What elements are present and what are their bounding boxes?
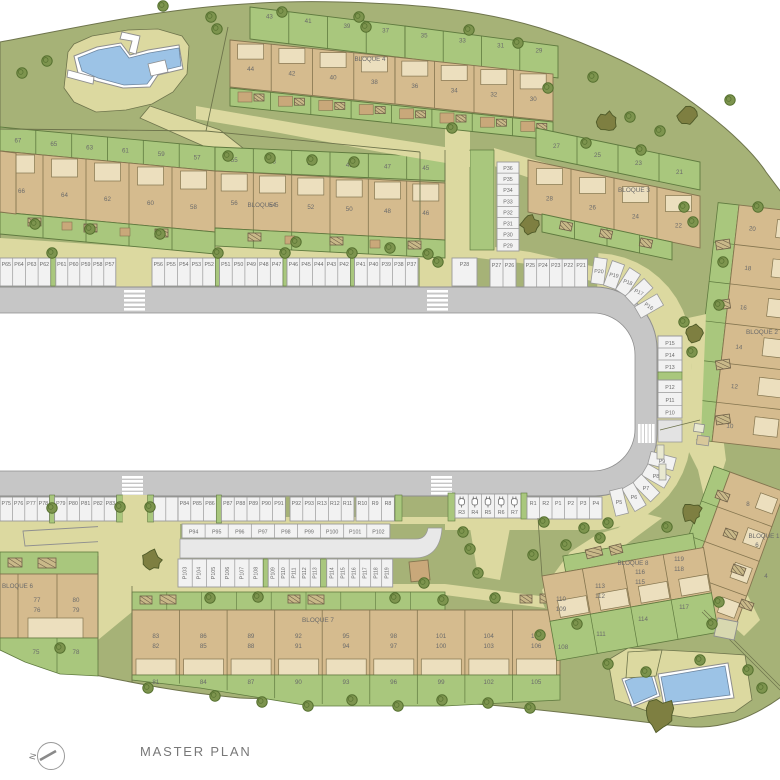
svg-text:113: 113: [595, 583, 605, 590]
svg-text:P118: P118: [374, 567, 380, 579]
svg-text:35: 35: [421, 33, 428, 40]
svg-text:81: 81: [152, 679, 159, 686]
svg-text:98: 98: [390, 633, 397, 640]
svg-text:64: 64: [61, 192, 68, 199]
svg-text:P55: P55: [166, 262, 175, 268]
svg-text:P42: P42: [339, 262, 348, 268]
svg-text:99: 99: [438, 679, 445, 686]
svg-text:P90: P90: [261, 501, 270, 507]
svg-text:P28: P28: [460, 262, 469, 268]
svg-text:P87: P87: [223, 501, 232, 507]
svg-text:59: 59: [158, 151, 165, 158]
svg-text:85: 85: [200, 643, 207, 650]
svg-text:92: 92: [295, 633, 302, 640]
svg-text:P33: P33: [503, 199, 512, 205]
svg-text:BLOQUE 1: BLOQUE 1: [749, 533, 780, 540]
svg-text:28: 28: [546, 196, 553, 203]
svg-text:31: 31: [497, 43, 504, 50]
svg-text:36: 36: [411, 83, 418, 90]
svg-text:112: 112: [595, 593, 605, 600]
svg-text:43: 43: [266, 13, 273, 20]
svg-text:16: 16: [740, 304, 748, 312]
svg-text:57: 57: [194, 154, 201, 161]
svg-text:P10: P10: [665, 411, 674, 417]
svg-text:37: 37: [382, 28, 389, 35]
svg-text:P82: P82: [93, 501, 102, 507]
svg-text:108: 108: [558, 644, 569, 651]
svg-text:114: 114: [638, 616, 648, 623]
svg-text:12: 12: [731, 383, 739, 391]
svg-text:65: 65: [50, 141, 57, 148]
svg-text:41: 41: [305, 18, 312, 25]
svg-text:103: 103: [484, 643, 495, 650]
svg-text:P45: P45: [301, 262, 310, 268]
svg-text:52: 52: [307, 204, 314, 211]
svg-text:22: 22: [675, 223, 682, 230]
svg-text:42: 42: [288, 70, 295, 77]
svg-text:38: 38: [371, 79, 378, 86]
svg-text:115: 115: [635, 579, 645, 586]
svg-text:21: 21: [676, 169, 683, 176]
svg-text:BLOQUE 6: BLOQUE 6: [2, 583, 34, 590]
svg-text:P107: P107: [239, 567, 245, 579]
svg-text:P20: P20: [594, 269, 604, 276]
svg-text:P62: P62: [40, 262, 49, 268]
svg-text:118: 118: [674, 566, 684, 573]
svg-text:P117: P117: [363, 567, 369, 579]
svg-text:86: 86: [200, 633, 207, 640]
svg-text:P31: P31: [503, 222, 512, 228]
svg-text:P30: P30: [503, 233, 512, 239]
svg-text:P26: P26: [505, 263, 514, 269]
svg-text:106: 106: [531, 643, 542, 650]
svg-text:P32: P32: [503, 210, 512, 216]
svg-text:105: 105: [531, 679, 542, 686]
svg-text:P57: P57: [105, 262, 114, 268]
svg-text:P39: P39: [381, 262, 390, 268]
svg-text:60: 60: [147, 200, 154, 207]
svg-text:91: 91: [295, 643, 302, 650]
svg-text:MASTER PLAN: MASTER PLAN: [140, 744, 252, 759]
svg-text:P98: P98: [281, 530, 290, 536]
svg-text:P110: P110: [281, 567, 287, 579]
svg-text:67: 67: [14, 138, 21, 145]
svg-text:P15: P15: [665, 341, 674, 347]
svg-text:P61: P61: [57, 262, 66, 268]
svg-text:40: 40: [330, 75, 337, 82]
svg-text:P56: P56: [154, 262, 163, 268]
svg-text:P99: P99: [304, 530, 313, 536]
svg-text:P22: P22: [564, 263, 573, 269]
svg-text:R4: R4: [471, 510, 478, 516]
svg-text:P80: P80: [68, 501, 77, 507]
svg-text:P94: P94: [189, 530, 198, 536]
svg-text:116: 116: [635, 569, 645, 576]
svg-text:P91: P91: [274, 501, 283, 507]
svg-text:P50: P50: [234, 262, 243, 268]
svg-text:P8: P8: [653, 474, 660, 480]
svg-text:94: 94: [343, 643, 350, 650]
svg-text:P114: P114: [330, 567, 336, 579]
svg-text:P75: P75: [1, 501, 10, 507]
svg-text:6: 6: [755, 542, 759, 549]
svg-text:P29: P29: [503, 244, 512, 250]
svg-text:P102: P102: [372, 530, 384, 536]
svg-text:P34: P34: [503, 188, 512, 194]
svg-text:95: 95: [343, 633, 350, 640]
svg-text:P11: P11: [665, 398, 674, 404]
svg-text:56: 56: [231, 200, 238, 207]
svg-text:84: 84: [200, 679, 207, 686]
svg-text:102: 102: [484, 679, 495, 686]
svg-text:75: 75: [33, 649, 40, 656]
svg-text:62: 62: [104, 196, 111, 203]
svg-text:78: 78: [73, 649, 80, 656]
svg-text:P100: P100: [326, 530, 338, 536]
svg-text:101: 101: [436, 633, 447, 640]
svg-text:44: 44: [247, 66, 254, 73]
svg-text:BLOQUE 4: BLOQUE 4: [355, 56, 387, 63]
svg-text:P7: P7: [643, 486, 650, 492]
svg-text:P89: P89: [249, 501, 258, 507]
svg-text:BLOQUE 7: BLOQUE 7: [302, 617, 334, 624]
svg-text:P1: P1: [555, 501, 562, 507]
svg-text:P84: P84: [180, 501, 189, 507]
svg-text:P65: P65: [2, 262, 11, 268]
svg-text:P105: P105: [211, 567, 217, 579]
svg-text:P79: P79: [56, 501, 65, 507]
svg-text:26: 26: [589, 205, 596, 212]
svg-text:20: 20: [749, 225, 757, 233]
svg-text:18: 18: [744, 265, 752, 273]
svg-text:N: N: [27, 752, 38, 761]
svg-text:R9: R9: [372, 501, 379, 507]
svg-text:P63: P63: [27, 262, 36, 268]
svg-text:P36: P36: [503, 166, 512, 172]
svg-text:50: 50: [346, 206, 353, 213]
svg-text:90: 90: [295, 679, 302, 686]
svg-text:61: 61: [122, 148, 129, 155]
svg-text:97: 97: [390, 643, 397, 650]
svg-text:P109: P109: [271, 567, 277, 579]
svg-text:111: 111: [596, 631, 606, 638]
svg-text:P46: P46: [289, 262, 298, 268]
svg-text:P83: P83: [106, 501, 115, 507]
svg-text:P115: P115: [341, 567, 347, 579]
svg-text:34: 34: [451, 87, 458, 94]
svg-text:P96: P96: [235, 530, 244, 536]
svg-text:P5: P5: [616, 500, 623, 506]
svg-text:P108: P108: [254, 567, 260, 579]
svg-text:30: 30: [530, 96, 537, 103]
svg-text:104: 104: [484, 633, 495, 640]
svg-text:P3: P3: [580, 501, 587, 507]
svg-text:R5: R5: [485, 510, 492, 516]
svg-text:82: 82: [152, 643, 159, 650]
svg-text:110: 110: [556, 596, 566, 603]
svg-text:P92: P92: [292, 501, 301, 507]
svg-text:P88: P88: [236, 501, 245, 507]
svg-text:63: 63: [86, 144, 93, 151]
svg-text:P48: P48: [259, 262, 268, 268]
svg-text:R8: R8: [385, 501, 392, 507]
svg-text:P27: P27: [492, 263, 501, 269]
svg-text:P101: P101: [349, 530, 361, 536]
svg-text:80: 80: [73, 597, 80, 604]
svg-text:P13: P13: [665, 365, 674, 371]
svg-text:P59: P59: [81, 262, 90, 268]
svg-text:23: 23: [635, 160, 642, 167]
svg-text:P113: P113: [313, 567, 319, 579]
svg-text:93: 93: [343, 679, 350, 686]
svg-text:R2: R2: [542, 501, 549, 507]
svg-text:109: 109: [556, 606, 567, 613]
svg-text:P35: P35: [503, 177, 512, 183]
svg-text:R1: R1: [530, 501, 537, 507]
svg-text:R11: R11: [343, 501, 352, 507]
svg-text:P111: P111: [292, 567, 298, 578]
svg-text:R10: R10: [358, 501, 368, 507]
svg-text:P44: P44: [314, 262, 323, 268]
svg-text:P95: P95: [212, 530, 221, 536]
svg-text:P24: P24: [538, 263, 547, 269]
svg-text:119: 119: [674, 556, 684, 563]
svg-text:R6: R6: [498, 510, 505, 516]
svg-text:P116: P116: [352, 567, 358, 579]
svg-text:P119: P119: [385, 567, 391, 579]
svg-text:46: 46: [422, 210, 429, 217]
svg-text:P54: P54: [179, 262, 188, 268]
svg-text:P25: P25: [526, 263, 535, 269]
svg-text:P2: P2: [568, 501, 575, 507]
svg-text:25: 25: [594, 152, 601, 159]
svg-text:87: 87: [247, 679, 254, 686]
svg-text:47: 47: [384, 164, 391, 171]
svg-text:P77: P77: [26, 501, 35, 507]
svg-text:P6: P6: [631, 495, 638, 501]
svg-text:89: 89: [247, 633, 254, 640]
svg-text:P49: P49: [246, 262, 255, 268]
svg-text:R12: R12: [330, 501, 340, 507]
svg-text:39: 39: [343, 23, 350, 30]
svg-text:P60: P60: [69, 262, 78, 268]
svg-text:45: 45: [422, 165, 429, 172]
svg-text:P37: P37: [407, 262, 416, 268]
svg-text:P40: P40: [369, 262, 378, 268]
svg-text:32: 32: [490, 92, 497, 99]
svg-text:P64: P64: [14, 262, 23, 268]
svg-text:P53: P53: [192, 262, 201, 268]
svg-text:96: 96: [390, 679, 397, 686]
svg-text:66: 66: [18, 188, 25, 195]
svg-text:8: 8: [746, 501, 750, 508]
svg-text:P12: P12: [665, 385, 674, 391]
svg-text:BLOQUE 3: BLOQUE 3: [618, 187, 650, 194]
svg-text:P85: P85: [192, 501, 201, 507]
svg-text:83: 83: [152, 633, 159, 640]
svg-text:P14: P14: [665, 353, 674, 359]
svg-text:P76: P76: [14, 501, 23, 507]
svg-text:88: 88: [247, 643, 254, 650]
svg-text:33: 33: [459, 38, 466, 45]
svg-text:79: 79: [73, 607, 80, 614]
svg-text:P97: P97: [258, 530, 267, 536]
svg-text:76: 76: [34, 607, 41, 614]
svg-text:14: 14: [735, 344, 743, 352]
svg-text:P112: P112: [302, 567, 308, 579]
svg-text:P51: P51: [221, 262, 230, 268]
svg-text:R3: R3: [458, 510, 465, 516]
svg-text:P103: P103: [183, 567, 189, 579]
svg-text:48: 48: [384, 208, 391, 215]
svg-text:P52: P52: [204, 262, 213, 268]
svg-text:P93: P93: [304, 501, 313, 507]
svg-text:24: 24: [632, 214, 639, 221]
svg-text:58: 58: [190, 204, 197, 211]
svg-text:27: 27: [553, 143, 560, 150]
svg-text:P104: P104: [197, 567, 203, 579]
svg-text:P38: P38: [394, 262, 403, 268]
svg-text:4: 4: [764, 573, 768, 580]
svg-text:77: 77: [34, 597, 41, 604]
svg-text:BLOQUE 5: BLOQUE 5: [248, 202, 280, 209]
svg-text:117: 117: [679, 604, 689, 611]
svg-text:P58: P58: [93, 262, 102, 268]
svg-text:P43: P43: [327, 262, 336, 268]
svg-text:100: 100: [436, 643, 447, 650]
svg-text:P86: P86: [205, 501, 214, 507]
svg-text:P47: P47: [272, 262, 281, 268]
svg-text:BLOQUE 2: BLOQUE 2: [746, 329, 778, 336]
svg-text:P23: P23: [551, 263, 560, 269]
svg-text:R7: R7: [511, 510, 518, 516]
svg-text:R13: R13: [317, 501, 327, 507]
svg-text:BLOQUE 8: BLOQUE 8: [618, 560, 650, 567]
svg-text:P81: P81: [81, 501, 90, 507]
svg-text:P41: P41: [356, 262, 365, 268]
svg-text:P21: P21: [576, 263, 585, 269]
svg-text:P106: P106: [225, 567, 231, 579]
svg-text:29: 29: [535, 48, 542, 55]
svg-text:P4: P4: [593, 501, 600, 507]
